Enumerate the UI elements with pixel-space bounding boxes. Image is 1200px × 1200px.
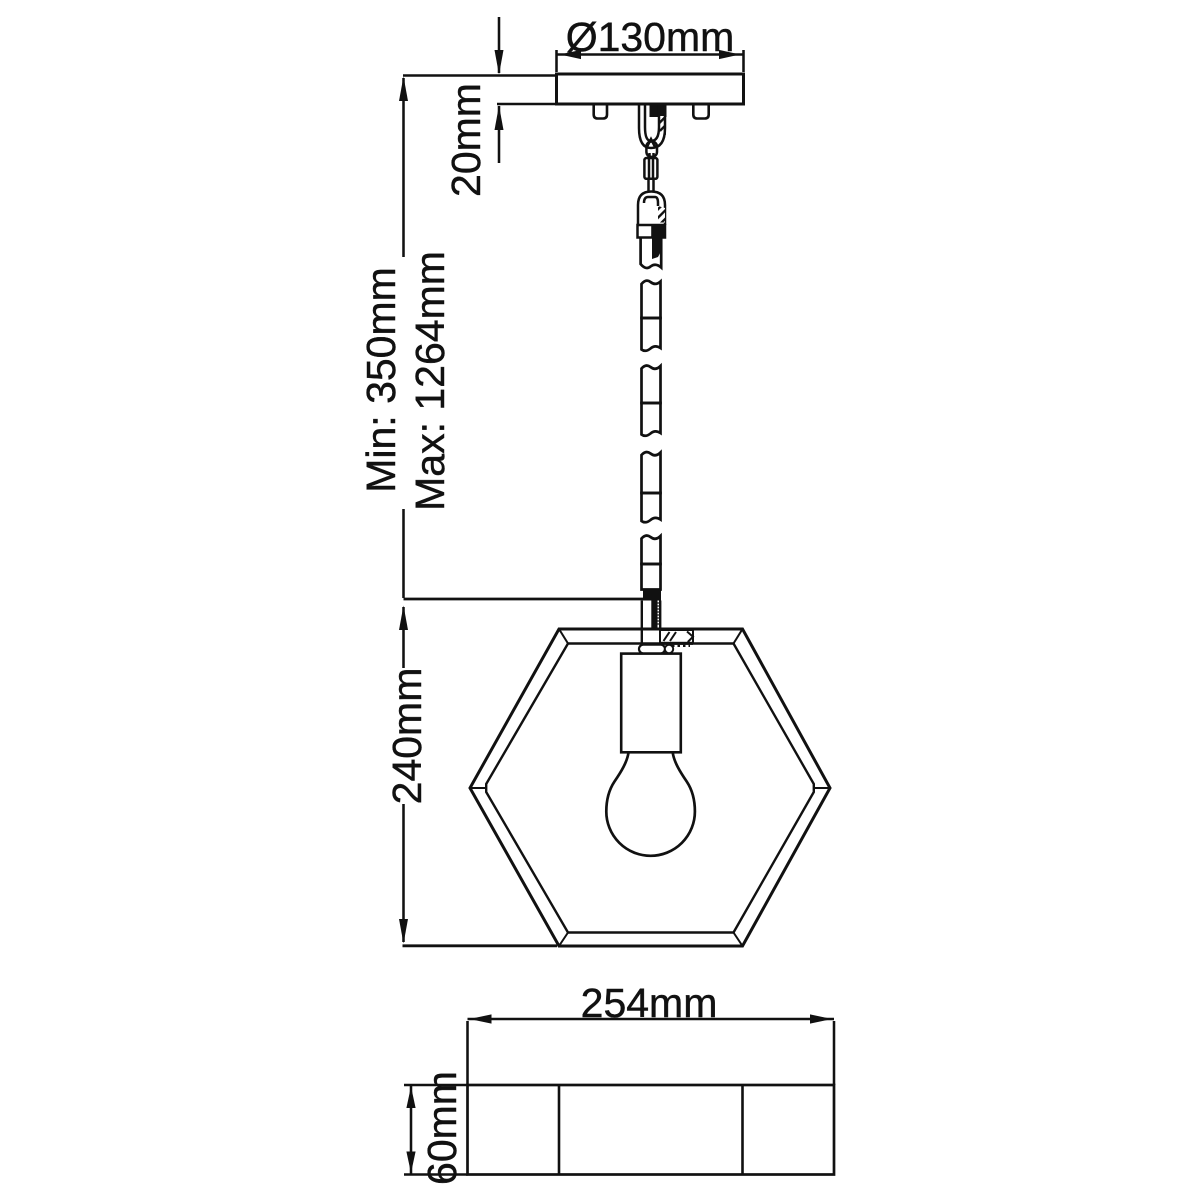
svg-text:20mm: 20mm bbox=[443, 83, 489, 197]
svg-text:Max: 1264mm: Max: 1264mm bbox=[407, 251, 453, 511]
svg-text:Ø130mm: Ø130mm bbox=[566, 14, 735, 60]
svg-text:Min: 350mm: Min: 350mm bbox=[358, 267, 404, 493]
svg-text:60mm: 60mm bbox=[419, 1071, 465, 1185]
svg-text:240mm: 240mm bbox=[384, 668, 430, 805]
